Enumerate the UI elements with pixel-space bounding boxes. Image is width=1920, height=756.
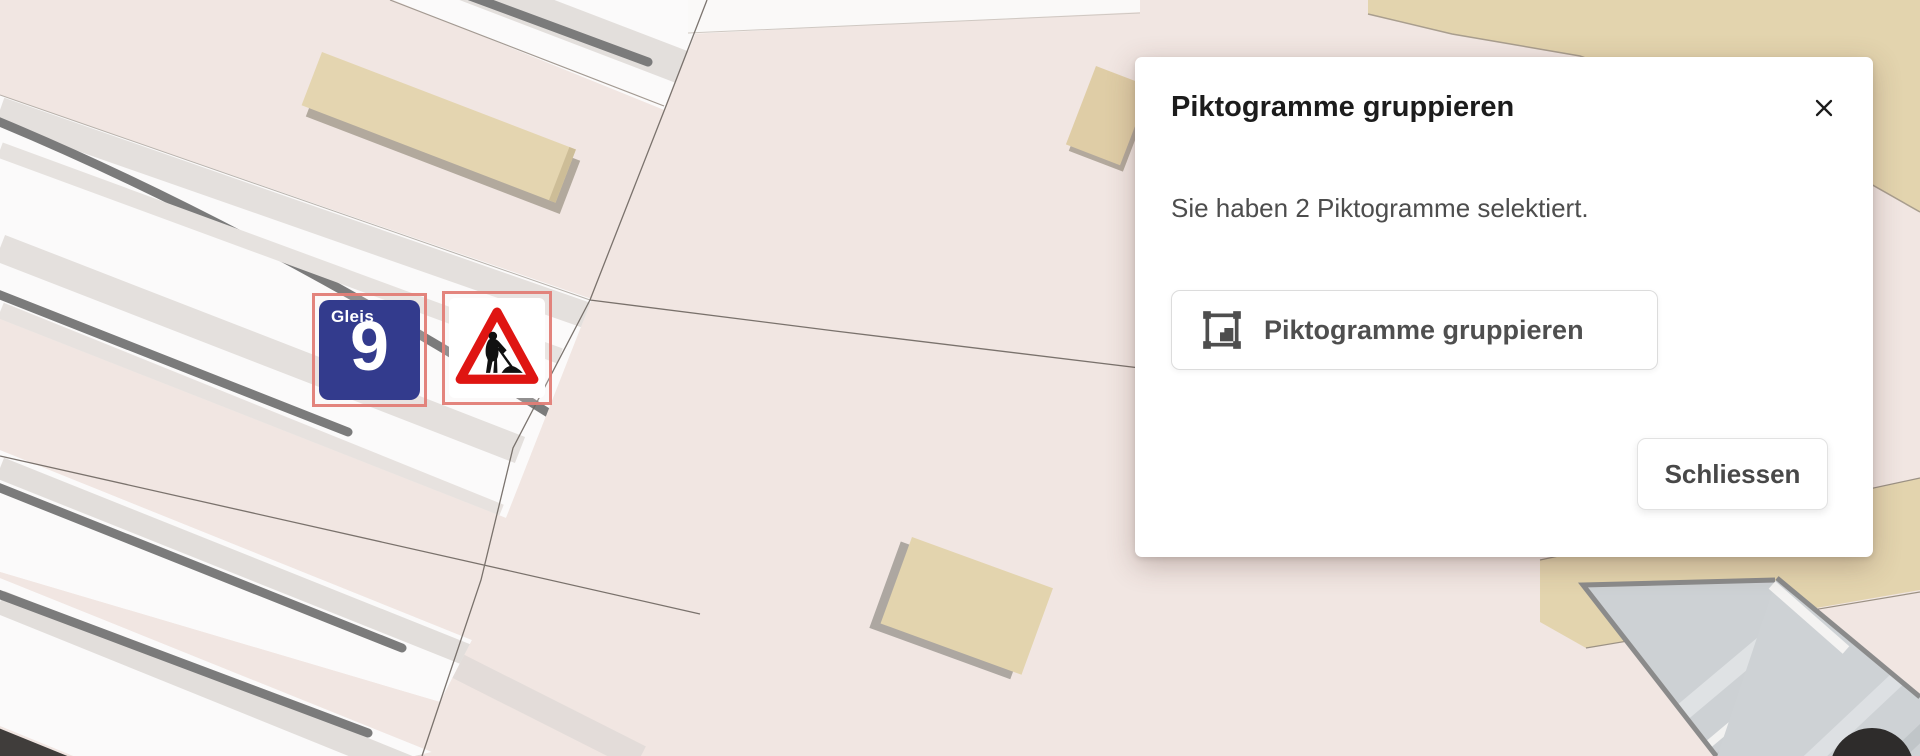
group-pictograms-button[interactable]: Piktogramme gruppieren	[1171, 290, 1658, 370]
dialog-title: Piktogramme gruppieren	[1171, 91, 1514, 124]
selection-count-message: Sie haben 2 Piktogramme selektiert.	[1171, 193, 1589, 224]
construction-sign[interactable]	[449, 298, 545, 398]
group-objects-icon	[1202, 310, 1242, 350]
construction-warning-icon	[451, 302, 543, 394]
close-icon[interactable]	[1809, 93, 1839, 123]
group-pictograms-dialog: Piktogramme gruppieren Sie haben 2 Pikto…	[1135, 57, 1873, 557]
selection-frame-track-sign[interactable]: Gleis 9	[312, 293, 427, 407]
selection-frame-construction-sign[interactable]	[442, 291, 552, 405]
group-pictograms-button-label: Piktogramme gruppieren	[1264, 315, 1584, 346]
track-sign[interactable]: Gleis 9	[319, 300, 420, 400]
schliessen-button[interactable]: Schliessen	[1637, 438, 1828, 510]
track-sign-number: 9	[319, 310, 420, 384]
